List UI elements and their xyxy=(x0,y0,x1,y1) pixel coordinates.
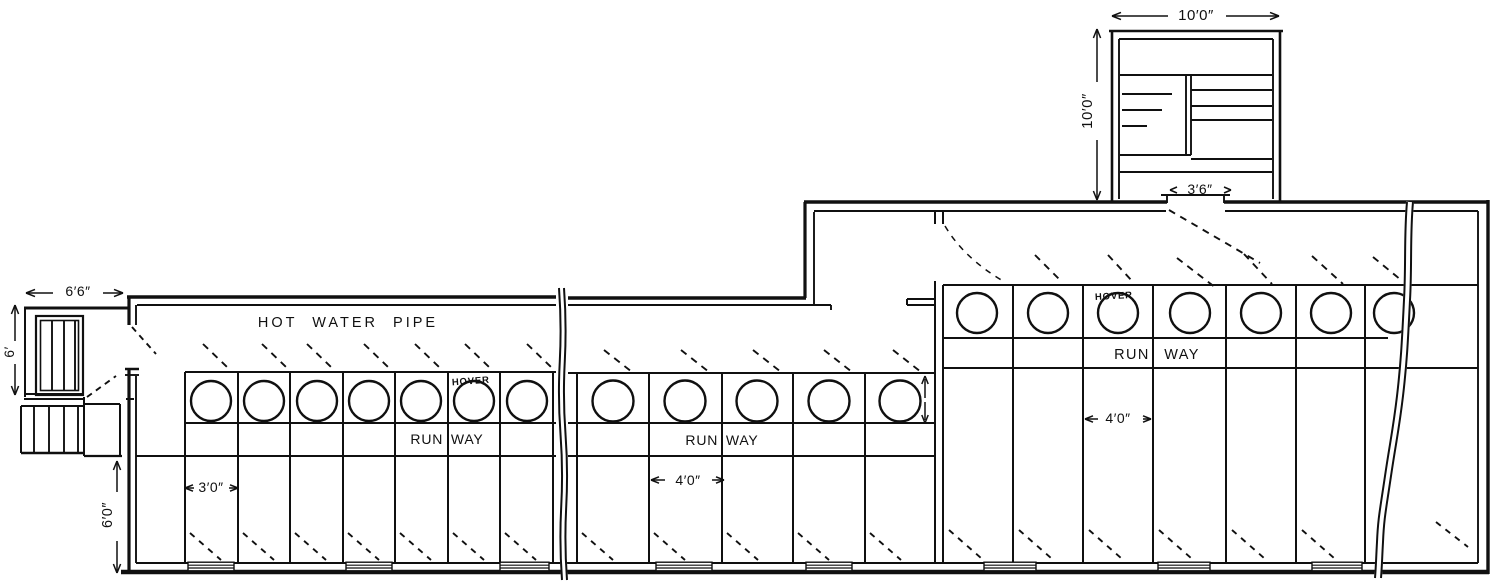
svg-text:HOT WATER PIPE: HOT WATER PIPE xyxy=(258,315,438,331)
svg-text:3′0″: 3′0″ xyxy=(198,479,223,495)
svg-text:4′0″: 4′0″ xyxy=(675,472,700,488)
svg-text:RUN WAY: RUN WAY xyxy=(1114,347,1200,363)
svg-text:4′0″: 4′0″ xyxy=(1105,410,1130,426)
svg-text:10′0″: 10′0″ xyxy=(1178,7,1214,24)
svg-text:RUN WAY: RUN WAY xyxy=(685,432,758,448)
svg-text:6′0″: 6′0″ xyxy=(100,502,116,528)
svg-text:6′: 6′ xyxy=(1,346,17,357)
svg-text:HOVER: HOVER xyxy=(1095,290,1133,303)
svg-text:RUN WAY: RUN WAY xyxy=(410,431,483,447)
svg-text:HOVER: HOVER xyxy=(452,375,490,389)
svg-text:6′6″: 6′6″ xyxy=(65,283,90,299)
svg-text:3′6″: 3′6″ xyxy=(1187,181,1212,197)
svg-text:10′0″: 10′0″ xyxy=(1079,93,1096,129)
